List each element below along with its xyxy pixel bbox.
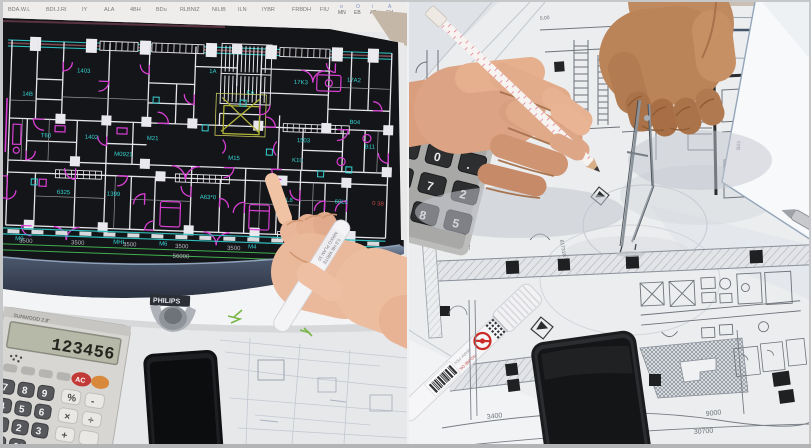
svg-text:4BH: 4BH	[130, 7, 141, 13]
svg-text:1503: 1503	[297, 138, 311, 144]
svg-text:A63*0: A63*0	[200, 195, 217, 202]
svg-text:1402: 1402	[85, 135, 99, 141]
svg-text:B11: B11	[365, 144, 376, 150]
svg-text:1399: 1399	[107, 191, 121, 197]
svg-text:FIU: FIU	[320, 7, 329, 13]
svg-text:M15: M15	[228, 156, 241, 162]
svg-text:IYBR: IYBR	[262, 7, 275, 13]
svg-text:BDI.J.RI: BDI.J.RI	[46, 7, 67, 13]
svg-text:K10: K10	[292, 158, 304, 164]
svg-text:1403: 1403	[77, 68, 91, 74]
svg-text:M6: M6	[159, 241, 168, 247]
svg-text:%: %	[66, 392, 77, 404]
svg-text:M21: M21	[147, 136, 160, 142]
svg-text:ILN: ILN	[238, 7, 247, 13]
svg-text:BDA.W.L: BDA.W.L	[8, 7, 30, 13]
svg-text:BDu: BDu	[156, 7, 167, 13]
svg-text:17A2: 17A2	[347, 78, 362, 85]
svg-text:KA: KA	[246, 90, 254, 96]
svg-text:ALA: ALA	[104, 7, 115, 13]
svg-text:T60: T60	[41, 133, 52, 139]
svg-text:IY: IY	[82, 7, 88, 13]
svg-text:M4: M4	[248, 244, 257, 250]
svg-text:3500: 3500	[227, 246, 241, 252]
svg-text:0 38: 0 38	[372, 201, 385, 208]
svg-text:3500: 3500	[19, 238, 33, 244]
svg-text:1A: 1A	[209, 69, 217, 75]
svg-text:17K3: 17K3	[294, 80, 309, 87]
svg-text:B04: B04	[349, 120, 361, 126]
svg-text:MN: MN	[338, 10, 346, 16]
svg-text:3500: 3500	[175, 244, 189, 250]
svg-text:NILIB: NILIB	[212, 7, 226, 13]
svg-text:6325: 6325	[57, 190, 71, 196]
svg-text:56000: 56000	[173, 254, 191, 261]
svg-text:M0921: M0921	[114, 152, 133, 159]
svg-text:RLBNIZ: RLBNIZ	[180, 7, 200, 13]
svg-text:3500: 3500	[71, 240, 85, 246]
svg-text:30700: 30700	[694, 428, 714, 436]
svg-text:60L2: 60L2	[335, 199, 349, 205]
svg-text:5:00: 5:00	[540, 15, 551, 22]
svg-text:14B: 14B	[22, 91, 33, 97]
svg-text:FRBDH: FRBDH	[292, 7, 311, 13]
svg-text:3500: 3500	[123, 242, 137, 248]
svg-text:PHILIPS: PHILIPS	[153, 297, 181, 305]
svg-text:EB: EB	[354, 10, 361, 16]
